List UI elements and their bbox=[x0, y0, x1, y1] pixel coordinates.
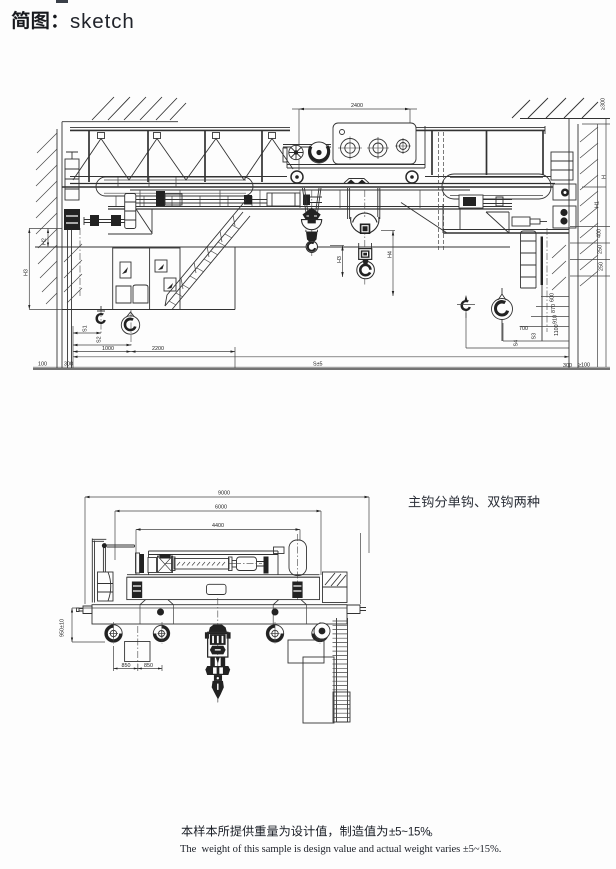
svg-text:2200: 2200 bbox=[152, 346, 164, 352]
svg-text:S±5: S±5 bbox=[313, 362, 323, 368]
svg-text:850: 850 bbox=[122, 663, 131, 669]
svg-text:H4: H4 bbox=[388, 251, 394, 258]
svg-text:600: 600 bbox=[550, 293, 556, 302]
svg-text:1100: 1100 bbox=[554, 324, 560, 336]
svg-text:2400: 2400 bbox=[351, 103, 363, 109]
svg-text:S2: S2 bbox=[97, 336, 103, 343]
svg-text:4400: 4400 bbox=[212, 523, 224, 529]
svg-text:400: 400 bbox=[597, 229, 603, 238]
svg-text:S3: S3 bbox=[532, 333, 538, 340]
svg-text:300: 300 bbox=[563, 363, 572, 369]
svg-text:S1: S1 bbox=[83, 325, 89, 332]
svg-text:H: H bbox=[602, 175, 608, 179]
svg-text:100: 100 bbox=[38, 362, 47, 368]
svg-text:1000: 1000 bbox=[102, 346, 114, 352]
svg-text:700: 700 bbox=[519, 326, 528, 332]
svg-text:950±10: 950±10 bbox=[60, 619, 66, 637]
svg-text:S4: S4 bbox=[514, 340, 520, 347]
svg-text:300: 300 bbox=[64, 362, 73, 368]
svg-text:≥300: ≥300 bbox=[601, 98, 607, 110]
svg-text:910: 910 bbox=[553, 315, 559, 324]
svg-text:870: 870 bbox=[551, 304, 557, 313]
svg-text:H2: H2 bbox=[42, 238, 48, 245]
svg-text:850: 850 bbox=[144, 663, 153, 669]
svg-text:250: 250 bbox=[598, 245, 604, 254]
svg-text:9000: 9000 bbox=[218, 491, 230, 497]
svg-text:H3: H3 bbox=[24, 269, 30, 276]
svg-text:250: 250 bbox=[599, 262, 605, 271]
svg-text:H1: H1 bbox=[595, 201, 601, 208]
svg-text:6000: 6000 bbox=[215, 505, 227, 511]
svg-text:H3: H3 bbox=[337, 256, 343, 263]
